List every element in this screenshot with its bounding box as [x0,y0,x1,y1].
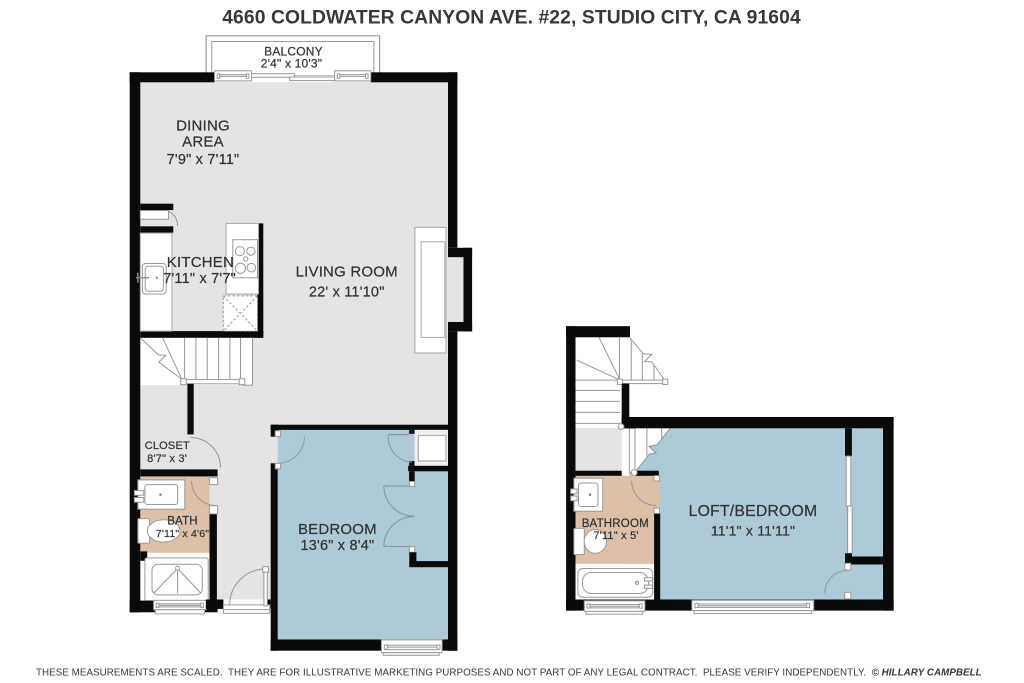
svg-text:8'7" x 3': 8'7" x 3' [147,453,187,465]
svg-text:CLOSET: CLOSET [145,440,190,452]
svg-text:7'11" x 5': 7'11" x 5' [593,530,638,542]
svg-text:BEDROOM: BEDROOM [298,521,377,538]
svg-text:13'6" x 8'4": 13'6" x 8'4" [300,538,374,554]
svg-text:11'1" x 11'11": 11'1" x 11'11" [711,523,795,539]
svg-text:22' x 11'10": 22' x 11'10" [309,284,385,300]
svg-text:KITCHEN: KITCHEN [167,254,234,271]
svg-text:7'11" x 7'7": 7'11" x 7'7" [163,271,236,287]
svg-text:7'9" x 7'11": 7'9" x 7'11" [167,152,240,168]
svg-text:DINING: DINING [176,118,230,135]
svg-text:LIVING ROOM: LIVING ROOM [296,264,398,281]
svg-text:7'11" x 4'6": 7'11" x 4'6" [156,528,209,540]
svg-text:BATHROOM: BATHROOM [582,518,649,530]
svg-text:4660 COLDWATER CANYON AVE. #22: 4660 COLDWATER CANYON AVE. #22, STUDIO C… [222,8,801,29]
svg-text:2'4" x 10'3": 2'4" x 10'3" [261,56,323,70]
svg-text:LOFT/BEDROOM: LOFT/BEDROOM [689,503,818,520]
svg-text:THESE MEASUREMENTS ARE SCALED.: THESE MEASUREMENTS ARE SCALED. THEY ARE … [36,668,982,679]
svg-text:AREA: AREA [182,134,224,151]
svg-text:BATH: BATH [167,516,198,528]
